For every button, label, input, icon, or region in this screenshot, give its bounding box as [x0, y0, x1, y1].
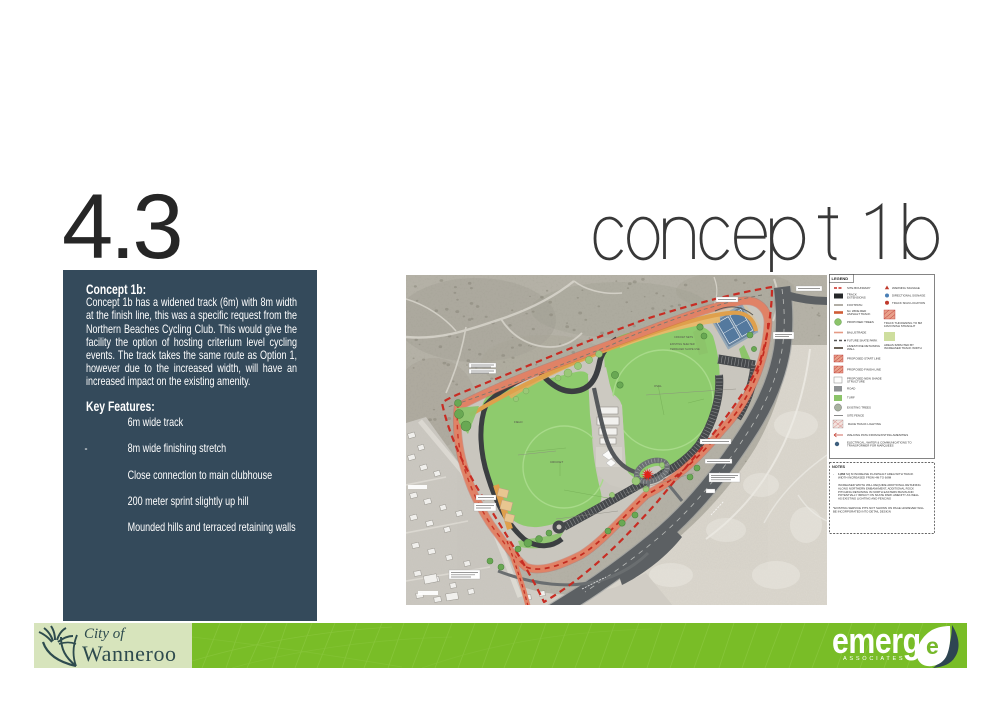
svg-text:RACE TRACK LIGHTING: RACE TRACK LIGHTING: [848, 422, 882, 426]
svg-text:WIDTH INCREASED FROM 4M TO 6/8: WIDTH INCREASED FROM 4M TO 6/8M: [838, 475, 892, 479]
svg-text:NOTES: NOTES: [832, 465, 846, 469]
svg-text:-: -: [833, 472, 834, 476]
svg-text:AS EXISTING LIGHTING AND FENCI: AS EXISTING LIGHTING AND FENCING: [838, 497, 892, 501]
svg-text:CRICKET NETS: CRICKET NETS: [674, 335, 693, 339]
svg-text:OVAL: OVAL: [654, 384, 662, 388]
svg-text:TRACK SIGN LOCATION: TRACK SIGN LOCATION: [892, 301, 925, 305]
svg-text:TERRACED SLOPE USE: TERRACED SLOPE USE: [670, 347, 700, 351]
svg-text:ASPHALT TRACK: ASPHALT TRACK: [847, 312, 871, 316]
svg-text:LEGEND: LEGEND: [832, 276, 849, 281]
svg-text:EXISTING SHELTER: EXISTING SHELTER: [670, 342, 695, 346]
svg-text:FUTURE SKATE PARK: FUTURE SKATE PARK: [847, 339, 877, 343]
svg-text:FOOTPATH: FOOTPATH: [847, 303, 862, 307]
svg-text:CRICKET: CRICKET: [550, 460, 563, 464]
svg-text:PROPOSED TREES: PROPOSED TREES: [847, 320, 874, 324]
svg-text:10M FINISH STRAIGHT: 10M FINISH STRAIGHT: [884, 324, 916, 328]
svg-text:TURF: TURF: [847, 396, 855, 400]
svg-text:ROAD: ROAD: [847, 387, 855, 391]
svg-text:WALL: WALL: [847, 347, 855, 351]
svg-text:STRUCTURE: STRUCTURE: [847, 380, 865, 384]
svg-text:EXISTING TREES: EXISTING TREES: [847, 406, 871, 410]
svg-text:PROPOSED FINISH LINE: PROPOSED FINISH LINE: [847, 368, 881, 372]
svg-text:PROPOSED START LINE: PROPOSED START LINE: [847, 357, 881, 361]
svg-text:ASSOCIATES: ASSOCIATES: [843, 656, 905, 662]
svg-text:4.3: 4.3: [62, 186, 180, 266]
svg-text:SITE FENCE: SITE FENCE: [847, 414, 864, 418]
svg-text:DIRECTIONAL SIGNAGE: DIRECTIONAL SIGNAGE: [892, 294, 925, 298]
svg-text:BALUSTRADE: BALUSTRADE: [847, 331, 866, 335]
svg-text:WARNING SIGNAGE: WARNING SIGNAGE: [892, 286, 920, 290]
svg-text:SITE BOUNDARY: SITE BOUNDARY: [847, 286, 871, 290]
svg-text:TRANSFORMER FOR MARQUEES: TRANSFORMER FOR MARQUEES: [847, 444, 894, 448]
svg-text:FIELD: FIELD: [514, 420, 523, 424]
svg-text:EXTENSIONS: EXTENSIONS: [847, 296, 866, 300]
svg-text:e: e: [926, 633, 939, 659]
svg-text:WALKING PATH FROM EXISTING AME: WALKING PATH FROM EXISTING AMENITIES: [847, 433, 908, 437]
svg-text:BE INCORPORATED INTO DETAIL DE: BE INCORPORATED INTO DETAIL DESIGN: [833, 509, 891, 513]
svg-text:INCREASED TRACK WIDTH: INCREASED TRACK WIDTH: [884, 346, 922, 350]
